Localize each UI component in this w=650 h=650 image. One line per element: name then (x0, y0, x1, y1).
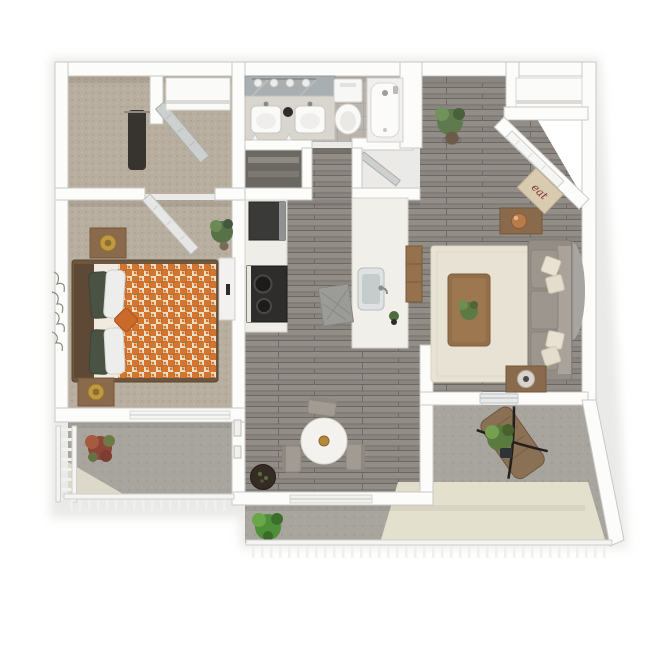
hall-closet-shelf (166, 100, 230, 104)
railing-rail (56, 426, 61, 502)
patio-sunlit-area (380, 482, 606, 543)
table-centerpiece (319, 436, 329, 446)
copper-lamp (512, 214, 527, 229)
linen-shelf (248, 157, 299, 163)
faucet (264, 102, 269, 107)
coffee-table (448, 274, 490, 346)
balcony-plant (85, 435, 115, 462)
coat-closet (516, 78, 582, 110)
coat-closet-bottom-wall (504, 107, 588, 120)
plant-pot (500, 448, 512, 458)
railing-bar (246, 540, 612, 545)
floor-plan-image: eat (0, 0, 650, 650)
bedroom-top-wall (55, 188, 145, 200)
bathtub (367, 78, 403, 142)
sofa (528, 240, 572, 380)
wall-frame (234, 420, 241, 436)
living-bottom-wall (516, 392, 588, 405)
sofa-pillow (545, 274, 564, 293)
utility-left-wall (352, 148, 362, 188)
vanity-light-bulb (302, 79, 310, 87)
hanging-clothes (128, 110, 146, 170)
dining-chair (284, 446, 301, 472)
kitchen-mat (319, 284, 354, 326)
plant-pot (446, 132, 459, 145)
wall-left (55, 62, 68, 422)
hall-wood-strip (312, 148, 352, 204)
pillow-white (104, 328, 125, 375)
hall-threshold (312, 148, 352, 153)
vanity-light-bulb (286, 79, 294, 87)
tub-drain (383, 128, 387, 132)
coat-closet-shelf (516, 100, 582, 104)
round-planter (251, 465, 276, 490)
bathroom (245, 76, 403, 142)
console-table (500, 208, 542, 234)
wall-frame (234, 446, 241, 458)
vanity-accessory (283, 107, 293, 117)
bed (72, 260, 218, 382)
plant-pot (220, 242, 229, 251)
railing-bar (64, 494, 234, 499)
vanity-light-bulb (270, 79, 278, 87)
refrigerator (249, 202, 285, 240)
railing-rail (72, 426, 77, 502)
floor-plan-3d: eat (0, 0, 650, 650)
faucet (308, 102, 313, 107)
bedroom-top-wall (215, 188, 245, 200)
wood-cabinet (406, 246, 422, 302)
range-cooktop (247, 266, 287, 322)
closet-stub-wall (150, 76, 163, 124)
vanity-light-bulb (254, 79, 262, 87)
dresser-handle (226, 284, 230, 295)
living-bottom-wall (420, 392, 482, 405)
dining-chair (346, 444, 363, 470)
tub-faucet (382, 90, 388, 96)
kitchen-island (352, 198, 408, 348)
hall-closet (166, 78, 230, 110)
bedroom-kitchen-wall (232, 200, 245, 505)
hall-bath-wall (232, 62, 245, 200)
shower-control (393, 86, 398, 94)
end-table (506, 366, 546, 392)
linen-shelf (248, 171, 299, 177)
